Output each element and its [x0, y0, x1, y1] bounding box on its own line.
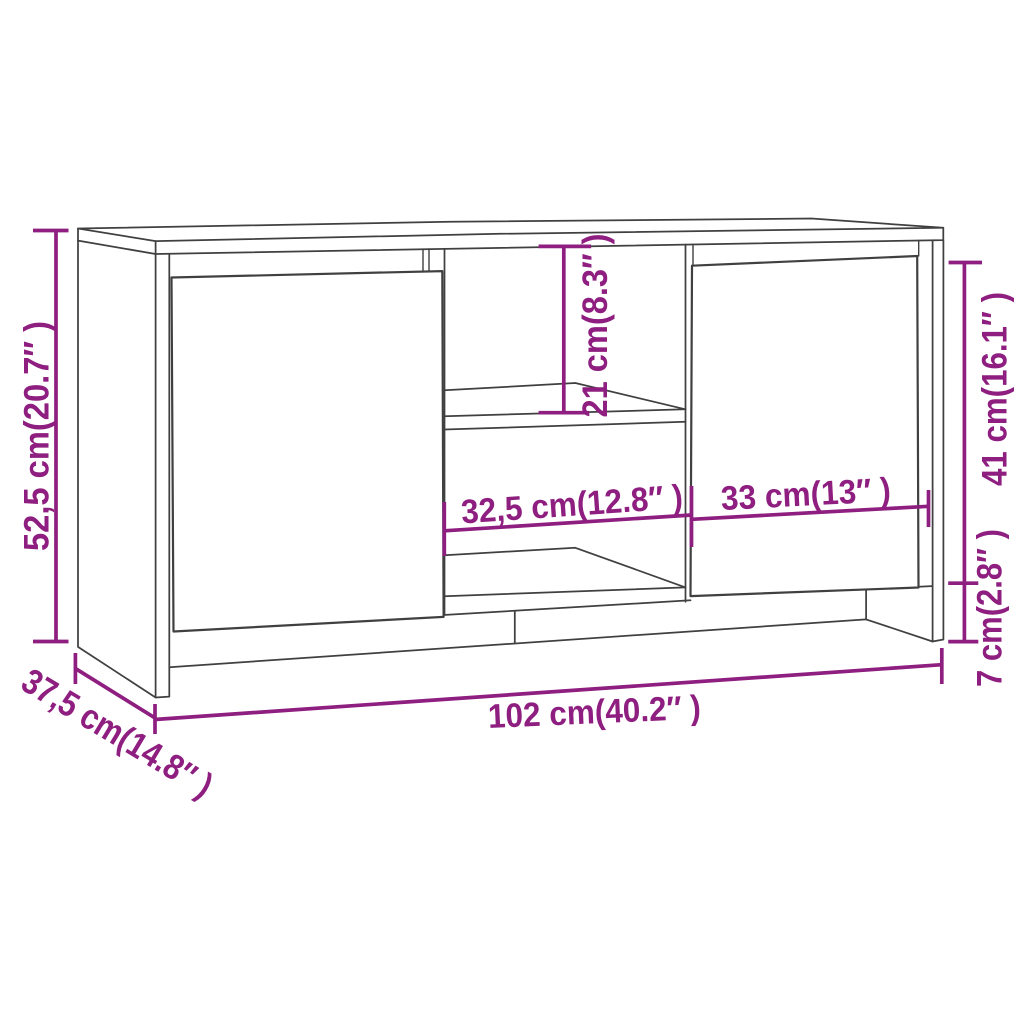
- svg-text:102 cm(40.2″ ): 102 cm(40.2″ ): [487, 689, 701, 736]
- svg-text:37,5 cm(14.8″ ): 37,5 cm(14.8″ ): [15, 661, 220, 806]
- svg-text:7 cm(2.8″ ): 7 cm(2.8″ ): [970, 529, 1010, 687]
- svg-text:32,5 cm(12.8″ ): 32,5 cm(12.8″ ): [460, 478, 684, 531]
- svg-text:21 cm(8.3″ ): 21 cm(8.3″ ): [575, 234, 615, 418]
- svg-text:52,5 cm(20.7″ ): 52,5 cm(20.7″ ): [17, 321, 57, 551]
- svg-text:41 cm(16.1″ ): 41 cm(16.1″ ): [975, 292, 1015, 486]
